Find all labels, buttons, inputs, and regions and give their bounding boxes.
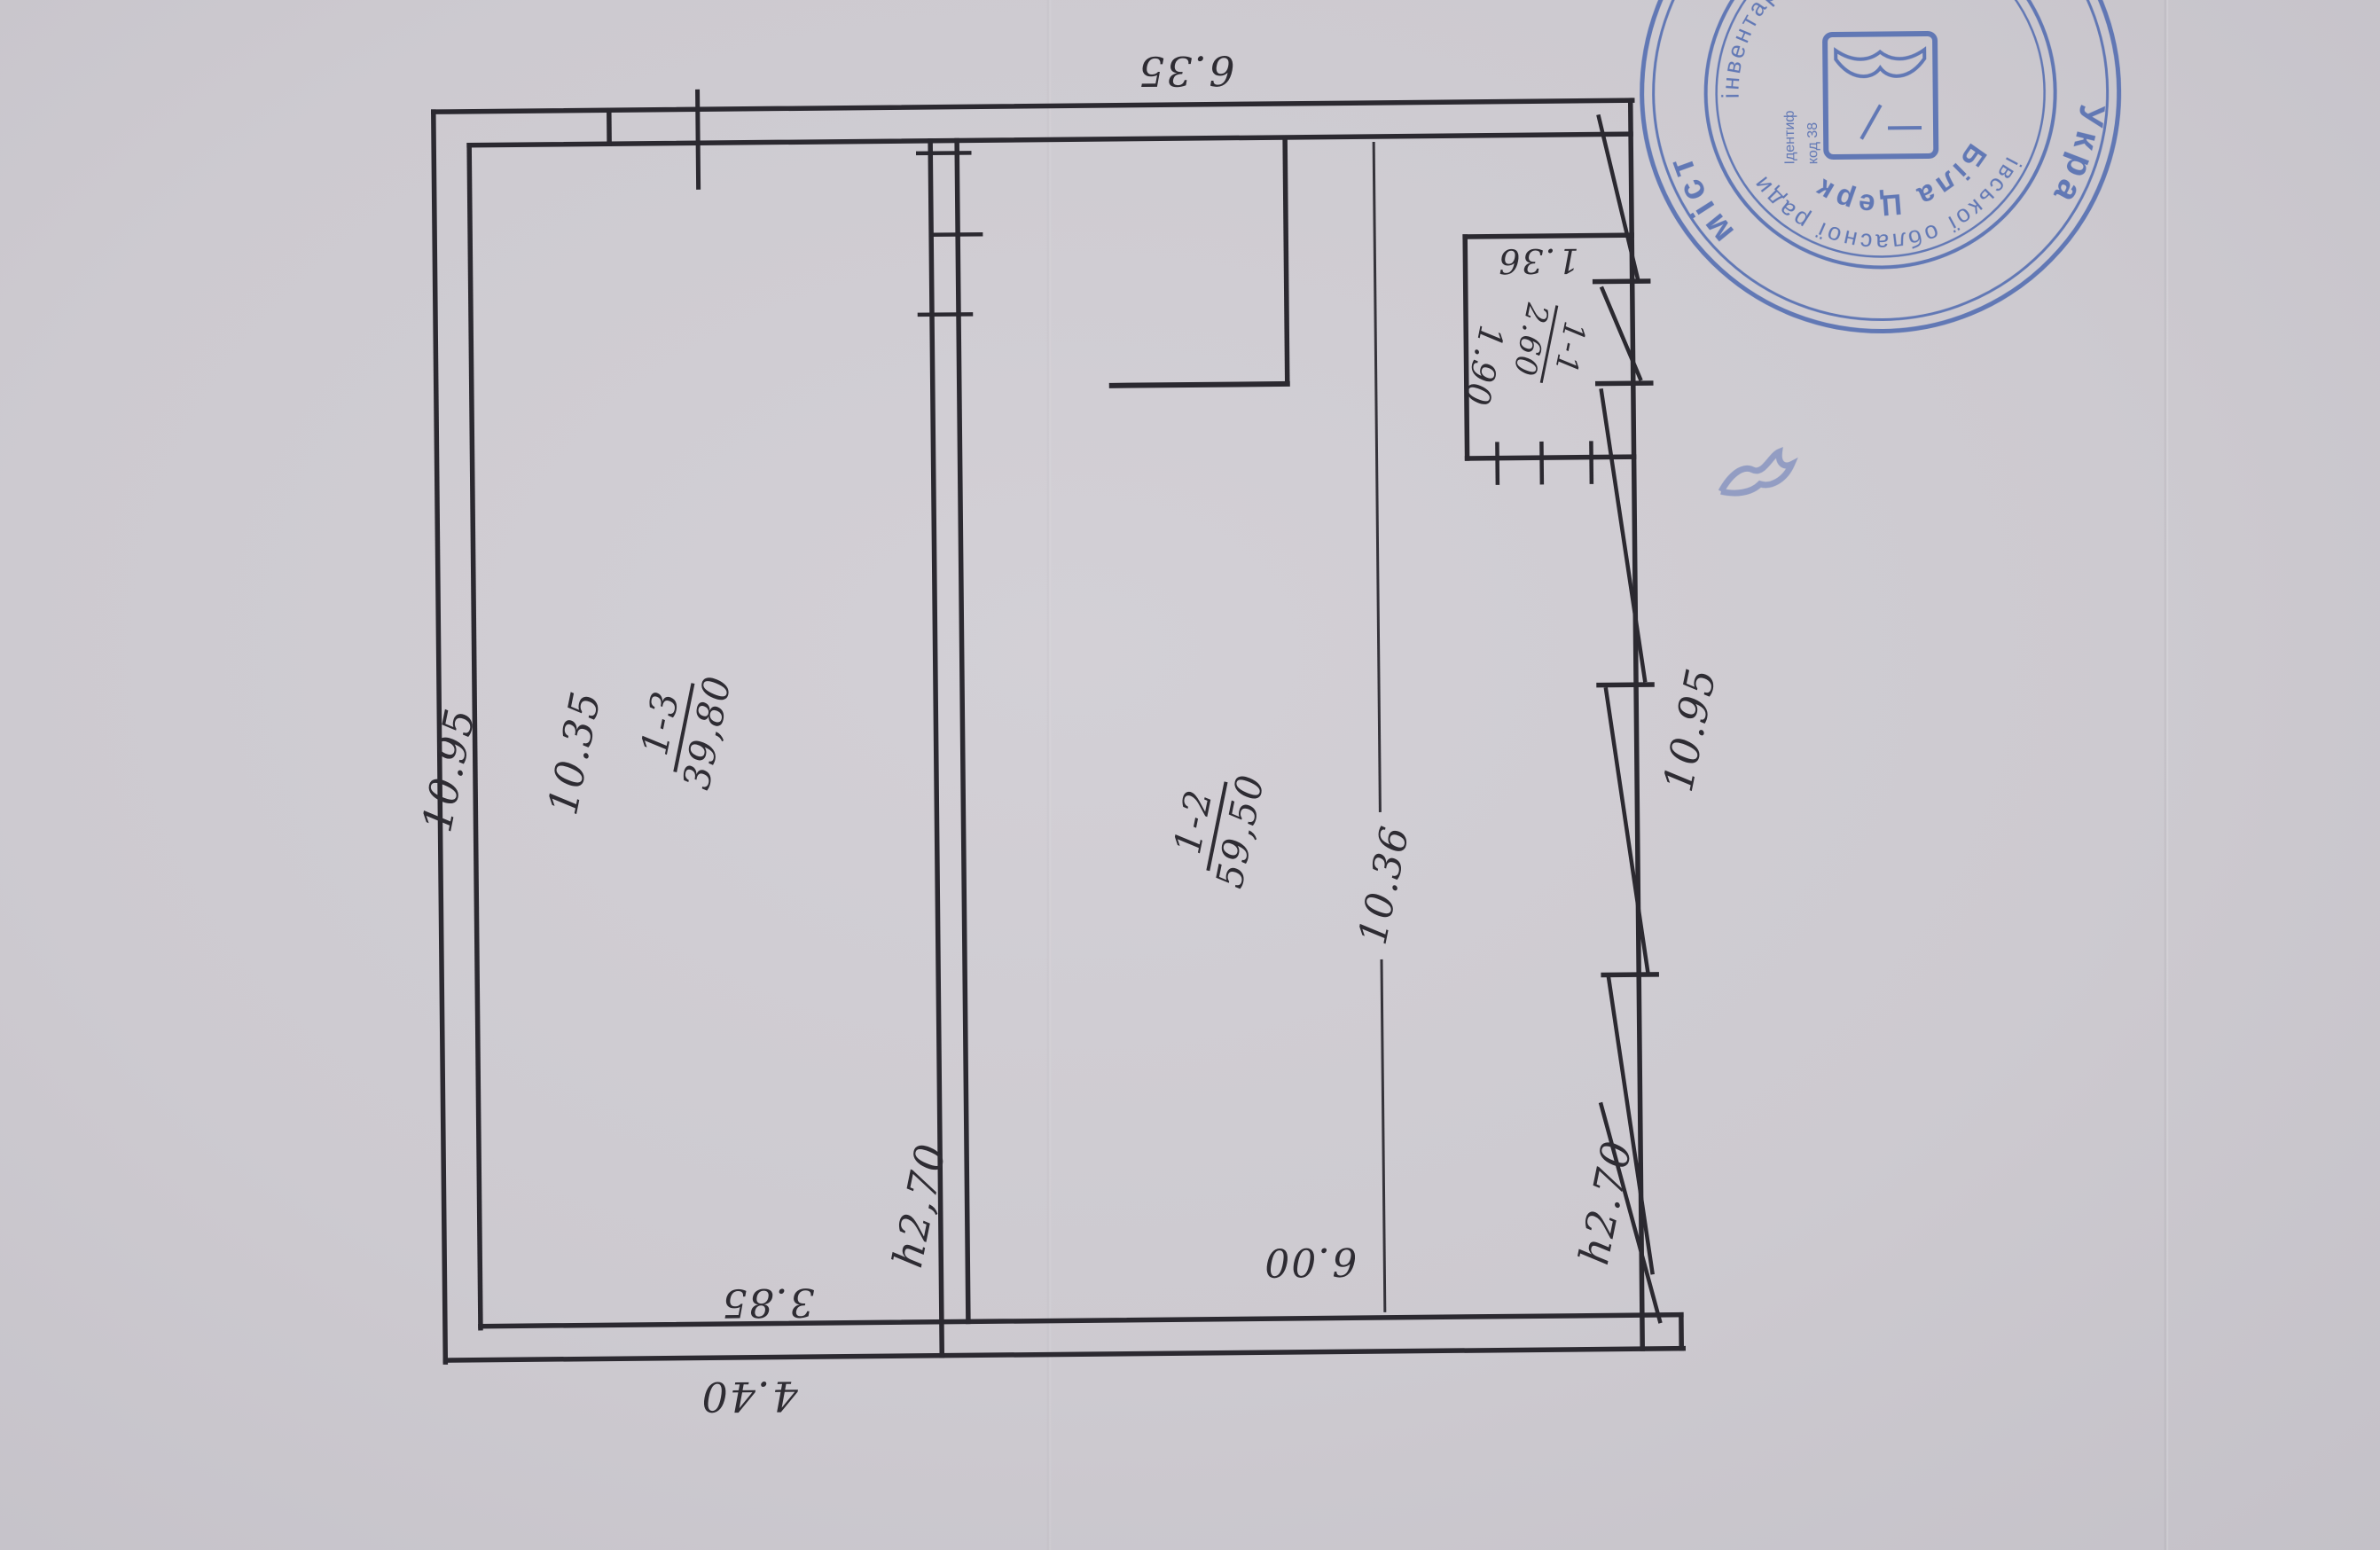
wall-tick: [1603, 975, 1656, 975]
closet-bottom: [1468, 457, 1634, 458]
drawing-sheet: Укра міст івської обласної ради інвентар…: [0, 0, 2380, 1550]
emblem-quill: [1861, 105, 1881, 138]
closet-top: [1465, 235, 1632, 237]
dim-bottom-room2: 6.00: [1263, 1239, 1357, 1285]
dim-closet-width: 1.36: [1497, 241, 1579, 281]
partition-line: [1112, 384, 1288, 386]
window-sash: [1606, 689, 1648, 971]
open-book-icon: [1836, 50, 1924, 76]
wall-bottom-inner: [481, 1315, 1681, 1327]
svg-text:Ідентиф: Ідентиф: [1782, 110, 1798, 164]
wall-top-outer: [434, 100, 1632, 112]
wall-tick: [698, 91, 699, 187]
wall-top-inner: [469, 134, 1631, 145]
wall-tick: [1598, 383, 1651, 384]
wall-bottom-outer: [445, 1349, 1683, 1360]
dim-bottom-inner: 3.85: [720, 1280, 814, 1326]
window-sash: [1601, 390, 1645, 680]
dimension-line-upper: [1374, 142, 1380, 812]
ink-smudge: [1721, 451, 1792, 493]
wall-outline: [434, 82, 1684, 1362]
room-label-1-1: 1-1 2.60: [1507, 299, 1592, 390]
dim-bottom-outer: 4.40: [700, 1372, 798, 1421]
partial-partition: [1109, 139, 1288, 386]
official-stamp: Укра міст івської обласної ради інвентар…: [1640, 0, 2123, 494]
partition-tie: [918, 153, 969, 153]
partition-tie: [920, 314, 971, 315]
stamp-outer-text-right: міст: [1659, 147, 1742, 252]
svg-text:код 38: код 38: [1805, 122, 1820, 165]
stamp-code-text: Ідентиф код 38: [1782, 110, 1821, 164]
dim-top-width: 6.35: [1137, 46, 1235, 95]
wall-tick: [1595, 281, 1648, 282]
partition-line: [957, 140, 968, 1321]
dimension-line: [1374, 142, 1385, 1312]
scanned-floor-plan-page: Укра міст івської обласної ради інвентар…: [0, 0, 2380, 1550]
stamp-mid-ring: [1704, 0, 2057, 269]
partition-line: [1285, 139, 1288, 380]
wall-tick: [1599, 685, 1652, 685]
stamp-emblem: [1825, 34, 1936, 157]
partition-tie: [931, 234, 981, 235]
dimension-line-lower: [1382, 959, 1385, 1312]
